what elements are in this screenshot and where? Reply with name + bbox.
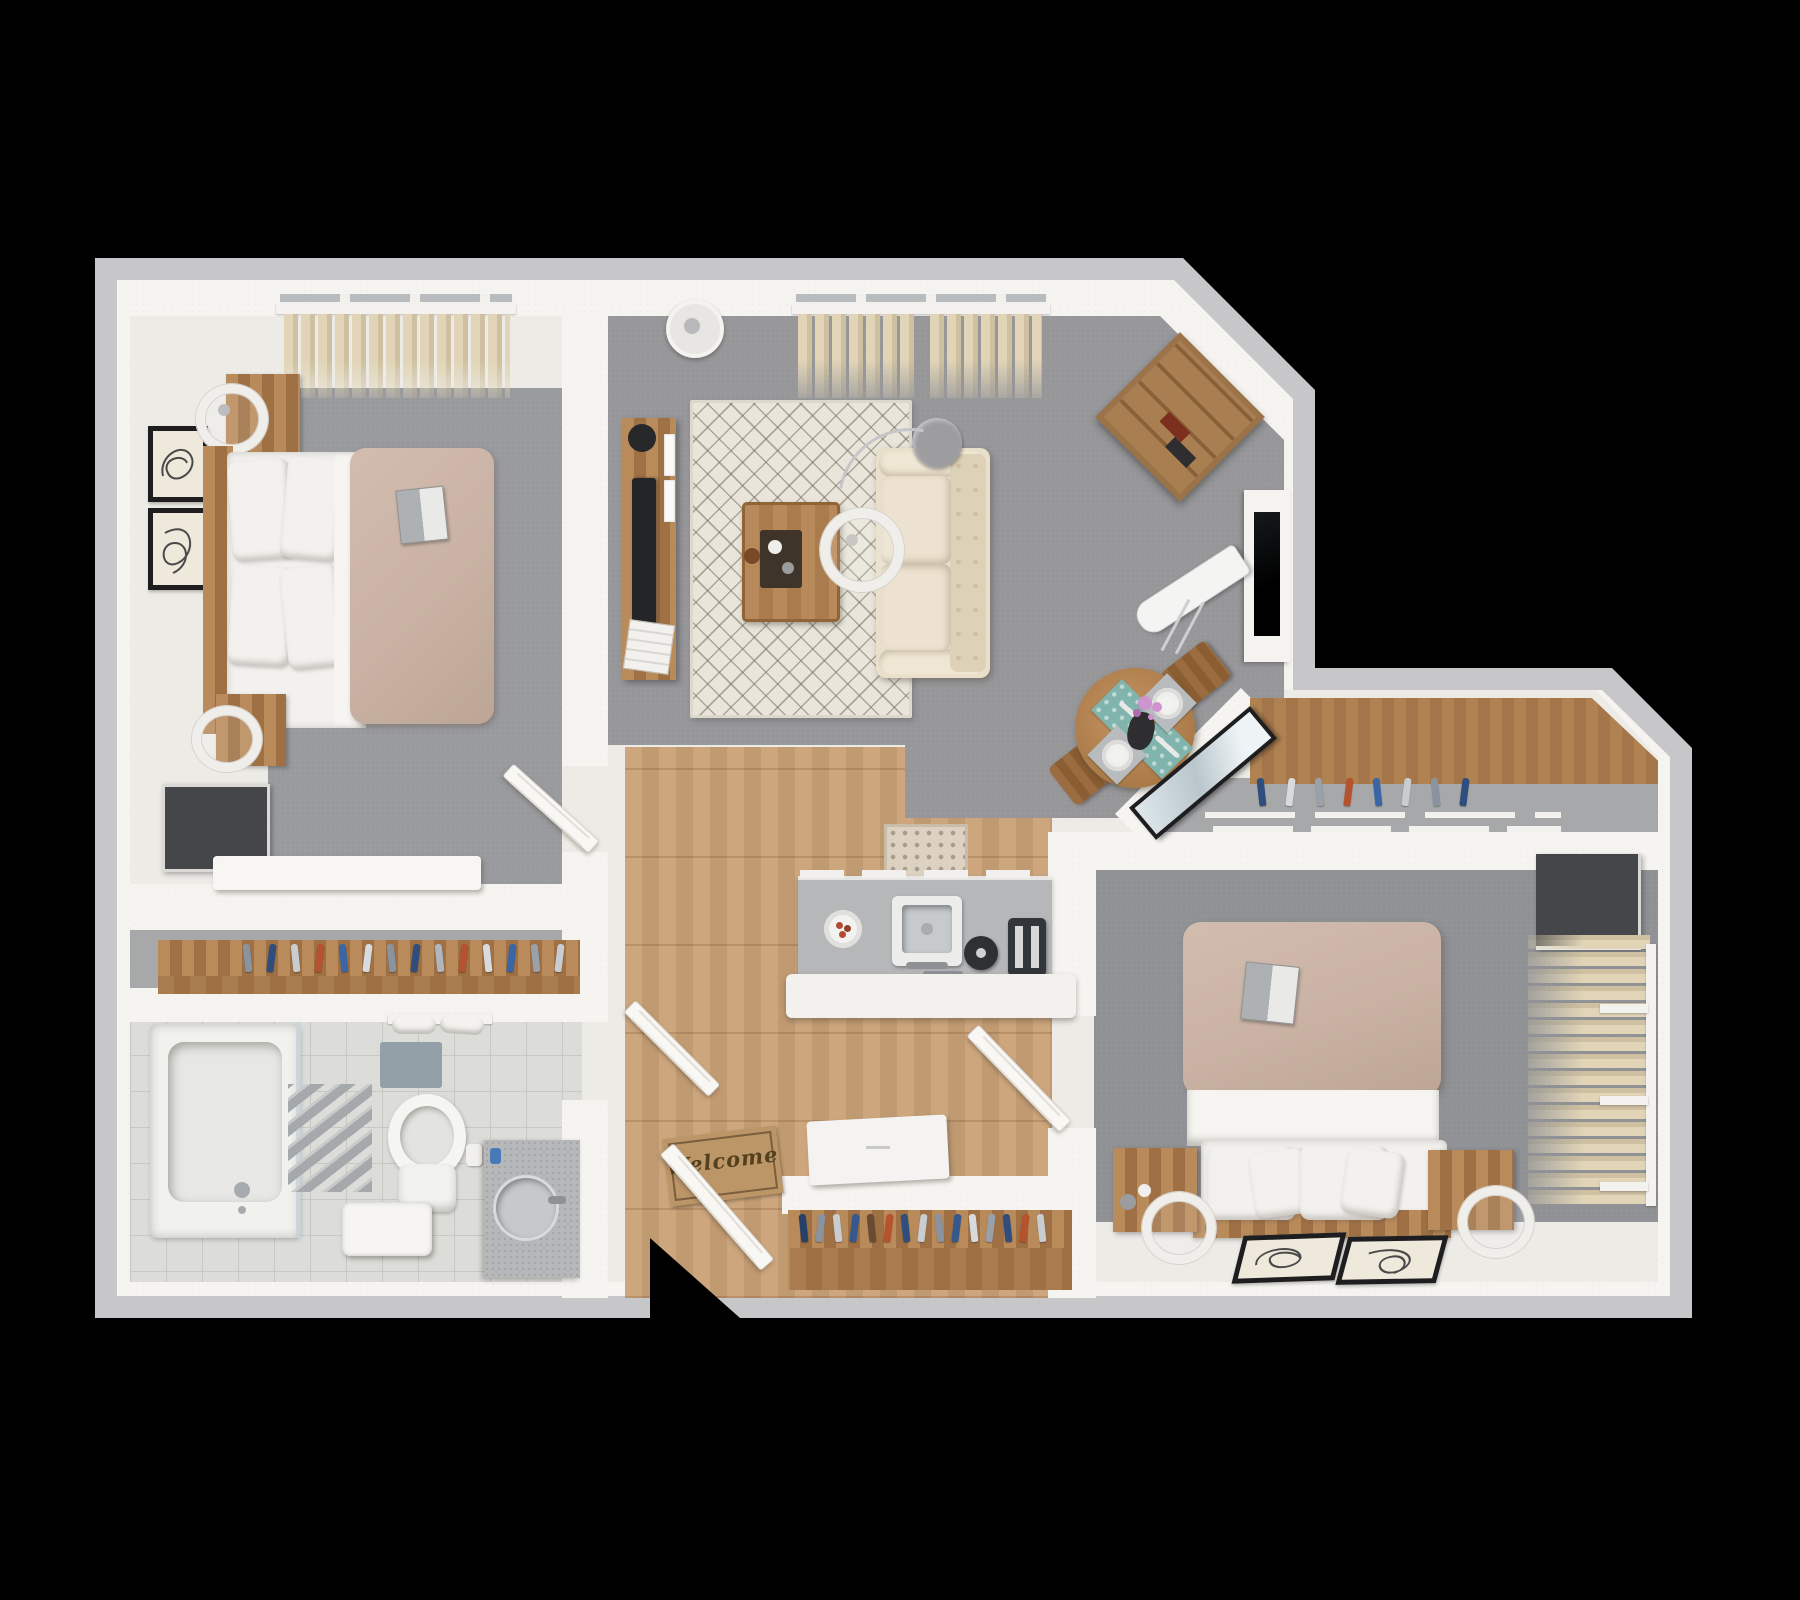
towel-roll (392, 1016, 436, 1034)
television (632, 478, 656, 630)
console-drawer (664, 480, 675, 522)
bedroom1-lamp-top-bulb (218, 404, 230, 416)
magazine-stack (623, 619, 676, 675)
clothes-item (1037, 1214, 1047, 1243)
toaster-slots (1015, 926, 1023, 968)
clothes-item (1459, 778, 1469, 807)
entry-closet-hangers (800, 1214, 1060, 1248)
towel-radiator (288, 1084, 372, 1192)
dinner-plate (1152, 688, 1183, 719)
bedroom2-curtain-bracket (1600, 1182, 1648, 1191)
console-plant-pot (628, 424, 656, 452)
bedroom1-curtains (284, 314, 510, 398)
bedroom1-closet-front (158, 976, 580, 994)
bedroom1-closet-hangers (244, 944, 574, 978)
bedroom2-curtain-bracket (1600, 1096, 1648, 1105)
clothes-item (799, 1214, 809, 1243)
clothes-item (362, 944, 372, 973)
kitchen-bar-counter (786, 974, 1076, 1018)
bedroom2-book (1240, 961, 1300, 1024)
bedroom2-curtain-rail (1646, 944, 1656, 1206)
arc-lamp-hub (846, 534, 858, 546)
vanity-faucet (548, 1196, 566, 1204)
living-curtain-right (930, 314, 1042, 398)
bedroom2-sheet-fold (1187, 1090, 1439, 1146)
kettle-lid (976, 948, 986, 958)
clothes-item (1431, 778, 1441, 807)
walkin-closet-rail (1213, 826, 1561, 832)
bedroom2-curtains (1528, 934, 1650, 1204)
bath-bench (342, 1202, 432, 1256)
bedroom1-curtain-rail (276, 304, 516, 314)
table-bowl (744, 548, 760, 564)
clothes-item (1315, 778, 1325, 807)
toothbrush-cup (490, 1148, 501, 1164)
bedroom1-desk (213, 856, 481, 890)
bedroom2-lamp-left (1142, 1192, 1216, 1264)
toilet-seat (400, 1106, 454, 1166)
living-curtain-rail (792, 304, 1050, 314)
console-drawer (664, 434, 675, 476)
shower-fixture (234, 1182, 250, 1198)
bedroom2-pillow (1340, 1146, 1407, 1219)
clothes-item (951, 1214, 961, 1243)
clothes-item (1343, 778, 1353, 807)
living-side-window-glass (1254, 512, 1280, 636)
living-curtain-left (798, 314, 916, 398)
clothes-item (435, 944, 445, 973)
arc-lamp-shade (820, 508, 904, 592)
clothes-item (266, 944, 276, 973)
clothes-item (531, 944, 541, 973)
ceiling-light-center (684, 318, 700, 334)
clothes-item (815, 1214, 825, 1243)
bedroom1-lamp-bottom (192, 706, 262, 772)
counter-plate-food (836, 922, 843, 929)
living-window-glass (796, 294, 1046, 302)
clothes-item (483, 944, 493, 973)
clothes-item (1003, 1214, 1013, 1243)
bedroom2-curtain-bracket (1600, 1004, 1648, 1013)
clothes-item (1019, 1214, 1029, 1243)
entry-cabinet-handle (866, 1146, 890, 1149)
bath-mat (380, 1042, 442, 1088)
clothes-item (849, 1214, 859, 1243)
clothes-item (339, 944, 349, 973)
clothes-item (410, 944, 420, 973)
vanity-sink (496, 1178, 556, 1238)
clothes-item (458, 944, 468, 973)
bedroom2-floor-art-2 (1335, 1235, 1448, 1285)
bedroom1-wall-art-1 (148, 426, 208, 502)
clothes-item (314, 944, 324, 973)
tray-bowl (782, 562, 794, 574)
wall-bedroom1-living-upper (562, 316, 608, 766)
bedroom2-lamp-right (1458, 1186, 1534, 1258)
nightstand-ball (1138, 1184, 1151, 1197)
sink-drain (921, 923, 933, 935)
walkin-closet-rail (1205, 812, 1561, 818)
bedroom2-floor-art-1 (1231, 1232, 1346, 1284)
bathtub-basin (168, 1042, 282, 1202)
floor-plan-render: Welcome (0, 0, 1800, 1600)
toilet-paper-holder (466, 1144, 482, 1166)
clothes-item (506, 944, 516, 973)
clothes-item (291, 944, 301, 973)
bedroom1-window-glass (280, 294, 512, 302)
walkin-closet-shelf (1250, 698, 1658, 784)
clothes-item (554, 944, 564, 973)
clothes-item (833, 1214, 843, 1243)
clothes-item (387, 944, 397, 973)
entry-closet-front (790, 1248, 1070, 1290)
clothes-item (867, 1214, 877, 1243)
clothes-item (243, 944, 253, 973)
clothes-item (1373, 778, 1383, 807)
walkin-closet-hangers (1258, 778, 1488, 812)
clothes-item (1257, 778, 1267, 807)
bedroom1-book (395, 486, 448, 545)
counter-plate (824, 910, 862, 948)
bedroom2-duvet (1183, 922, 1441, 1096)
sink-faucet (906, 962, 948, 969)
bedroom1-wall-art-2 (148, 508, 208, 590)
toaster (1008, 918, 1046, 976)
wall-bedroom1-closet (130, 884, 608, 930)
tray-cup (768, 540, 782, 554)
clothes-item (883, 1214, 893, 1243)
flowers (1138, 696, 1152, 710)
entry-cabinet (806, 1114, 949, 1185)
clothes-item (969, 1214, 979, 1243)
towel-roll (439, 1014, 484, 1035)
kitchen-cabinet-seams (800, 870, 1050, 878)
clothes-item (1285, 778, 1295, 807)
bedroom1-lamp-top (196, 384, 268, 454)
clothes-item (935, 1214, 945, 1243)
clothes-item (917, 1214, 927, 1243)
clothes-item (985, 1214, 995, 1243)
coffee-table-tray (760, 530, 802, 588)
clothes-item (901, 1214, 911, 1243)
clothes-item (1401, 778, 1411, 807)
nightstand-cup (1120, 1194, 1136, 1210)
